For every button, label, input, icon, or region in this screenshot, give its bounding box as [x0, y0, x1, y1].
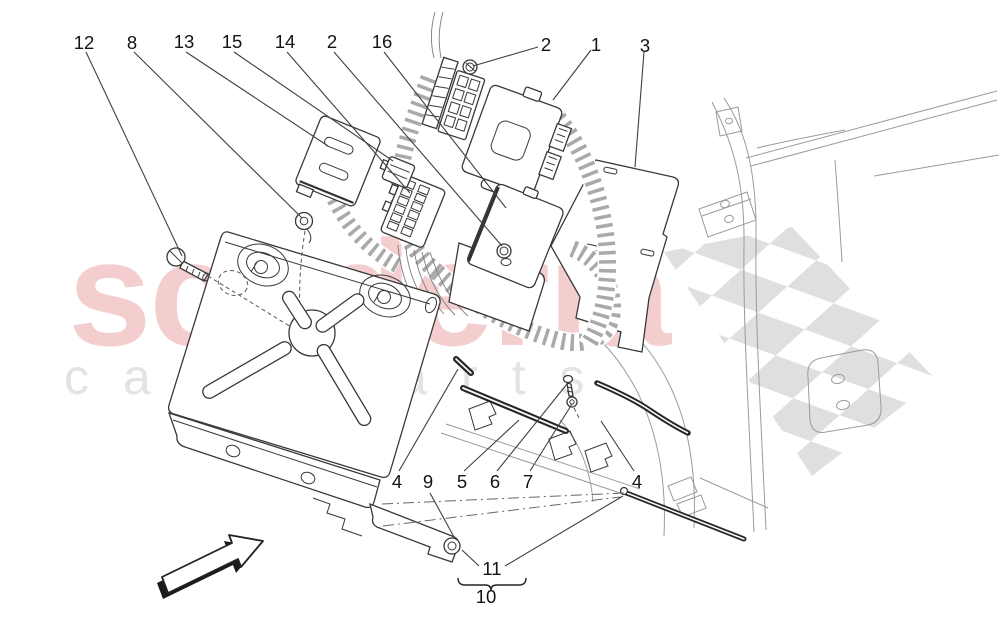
- callout-4b[interactable]: 4: [632, 471, 642, 492]
- callout-8[interactable]: 8: [127, 32, 137, 53]
- callout-5[interactable]: 5: [457, 471, 467, 492]
- mounting-bracket: [169, 231, 460, 562]
- callout-4a[interactable]: 4: [392, 471, 402, 492]
- grommet-item11: [444, 538, 460, 554]
- callout-10[interactable]: 10: [476, 586, 497, 607]
- callout-13[interactable]: 13: [174, 31, 195, 52]
- callout-2a[interactable]: 2: [327, 31, 337, 52]
- callout-6[interactable]: 6: [490, 471, 500, 492]
- screw-item2-upper: [463, 60, 477, 74]
- callout-9[interactable]: 9: [423, 471, 433, 492]
- callout-15[interactable]: 15: [222, 31, 243, 52]
- relay-module-item13: [292, 115, 382, 214]
- retaining-rods: [456, 359, 744, 539]
- callout-3[interactable]: 3: [640, 35, 650, 56]
- floor-rail: [441, 401, 640, 498]
- callout-11[interactable]: 11: [482, 558, 501, 579]
- parts-diagram-canvas: scuderia car parts: [0, 0, 1000, 630]
- checkered-flag-watermark: [664, 227, 936, 476]
- callout-14[interactable]: 14: [275, 31, 296, 52]
- bracket-lower-tab: [370, 504, 458, 562]
- diagram-line-art: 12 8 13 15 14 2 16 2 1 3 4 9 5 6 7 4 11 …: [0, 0, 1000, 630]
- callout-7[interactable]: 7: [523, 471, 533, 492]
- fuse-box-item14: [374, 171, 445, 248]
- washer-item7: [567, 397, 579, 418]
- callout-2b[interactable]: 2: [541, 34, 551, 55]
- screw-item12: [167, 248, 211, 282]
- direction-arrow-icon: [157, 535, 263, 599]
- body-bracket-plate-upper: [699, 192, 756, 237]
- callout-1[interactable]: 1: [591, 34, 601, 55]
- callout-12[interactable]: 12: [74, 32, 95, 53]
- callout-16[interactable]: 16: [372, 31, 393, 52]
